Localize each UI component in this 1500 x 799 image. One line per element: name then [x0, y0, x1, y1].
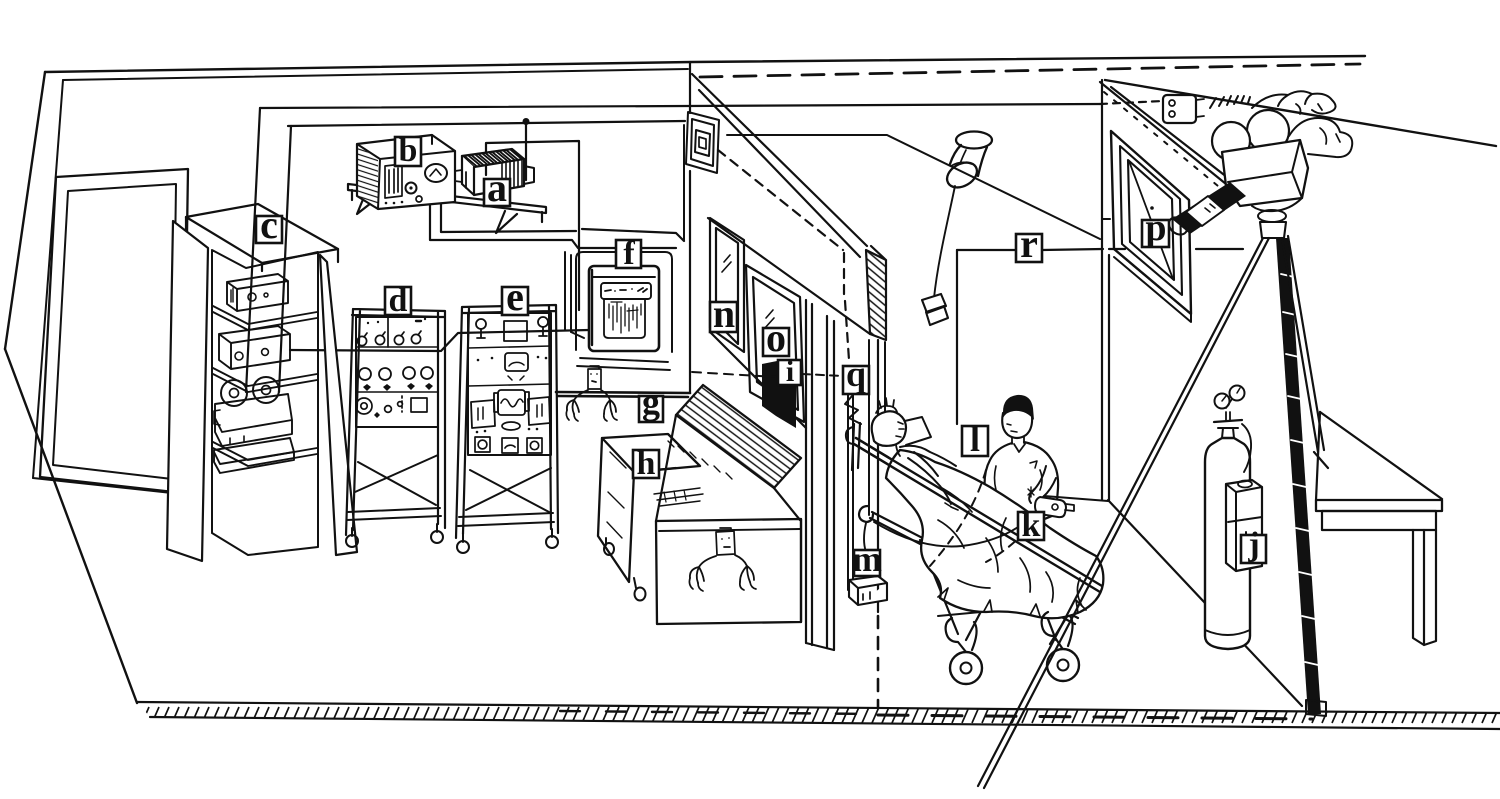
- svg-text:q: q: [846, 354, 866, 394]
- svg-text:b: b: [399, 132, 418, 169]
- svg-text:j: j: [1247, 526, 1259, 563]
- svg-text:m: m: [852, 539, 882, 579]
- svg-text:f: f: [623, 235, 635, 272]
- svg-text:c: c: [260, 202, 278, 247]
- svg-text:g: g: [642, 382, 660, 422]
- svg-text:i: i: [786, 355, 794, 388]
- svg-text:a: a: [487, 165, 507, 210]
- svg-text:r: r: [1020, 221, 1038, 266]
- svg-text:p: p: [1145, 207, 1166, 249]
- svg-text:l: l: [970, 419, 980, 459]
- svg-text:k: k: [1022, 507, 1041, 544]
- svg-text:h: h: [637, 445, 656, 482]
- svg-text:o: o: [766, 315, 786, 360]
- svg-text:d: d: [389, 282, 408, 319]
- svg-text:n: n: [713, 291, 735, 336]
- svg-text:e: e: [506, 274, 524, 319]
